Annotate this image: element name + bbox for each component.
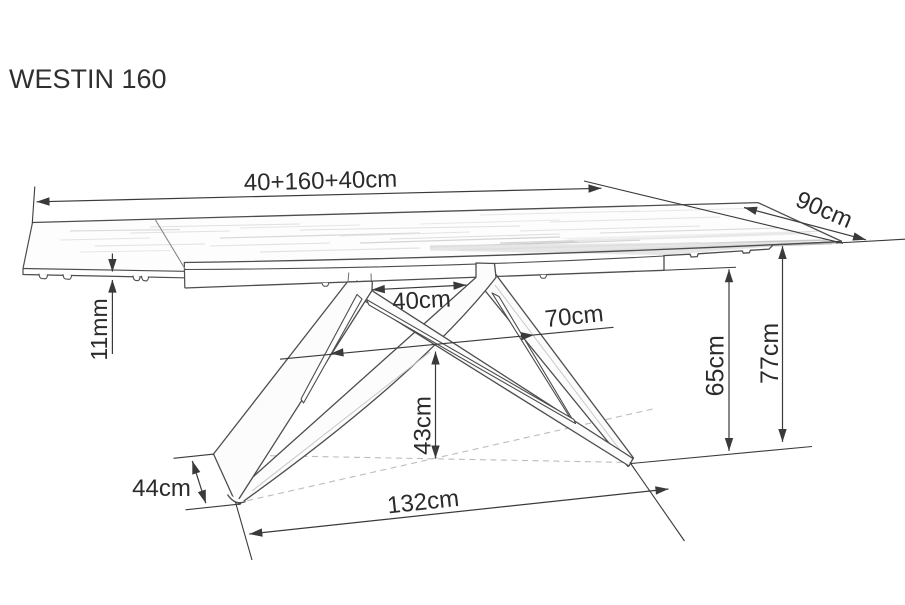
svg-text:77cm: 77cm	[756, 323, 784, 384]
svg-text:65cm: 65cm	[702, 335, 730, 396]
svg-text:WESTIN 160: WESTIN 160	[9, 64, 167, 94]
svg-text:11mm: 11mm	[86, 298, 112, 360]
svg-text:43cm: 43cm	[410, 396, 437, 455]
svg-text:44cm: 44cm	[132, 475, 191, 502]
svg-text:40cm: 40cm	[392, 286, 452, 316]
svg-text:40+160+40cm: 40+160+40cm	[243, 166, 397, 197]
